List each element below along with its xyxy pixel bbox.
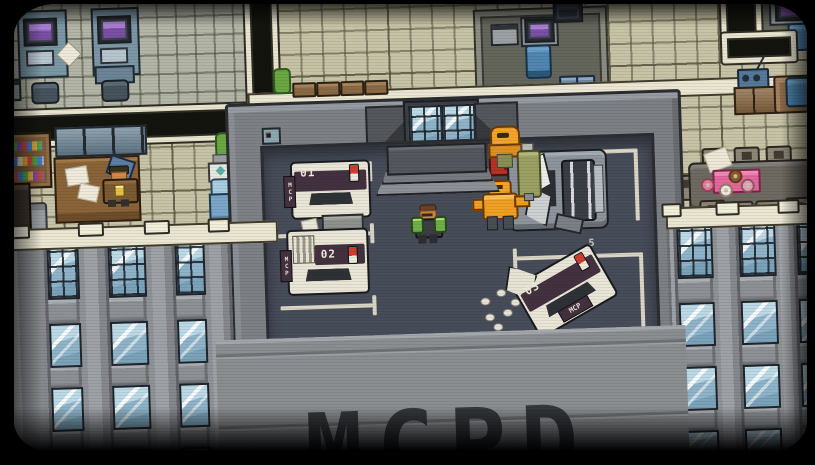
window	[110, 321, 149, 366]
window	[174, 239, 206, 296]
player-glove	[411, 217, 425, 234]
window	[741, 300, 779, 345]
window	[177, 319, 208, 364]
window	[51, 387, 84, 432]
roof-slats	[292, 235, 315, 264]
bot-chest	[497, 154, 513, 169]
police-car-02[interactable]: 02 MCP	[286, 227, 370, 296]
computer-monitor-off[interactable]	[552, 4, 583, 23]
car-roof-number: 02	[321, 247, 337, 260]
security-camera-icon[interactable]	[262, 127, 282, 145]
office-chair[interactable]	[101, 79, 130, 102]
game-world: 5 01 MCP	[14, 4, 807, 453]
player-visor	[422, 213, 433, 216]
book-row	[14, 141, 43, 152]
legs	[108, 200, 116, 207]
bot-leg	[487, 216, 498, 230]
wrench-tool	[524, 193, 534, 201]
window	[49, 323, 82, 368]
couch-bot-icon[interactable]	[785, 77, 807, 108]
debris-dot	[485, 313, 495, 321]
cabinet[interactable]	[733, 86, 778, 115]
window	[743, 364, 781, 409]
wall-seam	[216, 339, 686, 358]
parapet-cap	[14, 225, 30, 240]
window	[738, 220, 777, 277]
entrance-platform[interactable]	[386, 142, 487, 175]
car-side-label: MCP	[283, 176, 296, 208]
debris-dot	[503, 309, 513, 317]
debris-dot	[496, 289, 506, 297]
drink-item	[114, 184, 124, 196]
car-lightbar	[349, 164, 360, 182]
printer[interactable]	[490, 23, 519, 46]
window	[53, 451, 87, 453]
computer-monitor[interactable]	[774, 4, 807, 22]
car-rear	[593, 165, 605, 213]
office-chair[interactable]	[31, 82, 60, 105]
parking-line	[372, 295, 377, 315]
window	[181, 447, 213, 453]
debris-dot	[480, 297, 490, 305]
parapet-cap	[715, 201, 739, 216]
car-roof-number: 01	[300, 166, 316, 179]
speaker	[742, 75, 749, 82]
window	[114, 449, 154, 453]
bench[interactable]	[340, 80, 364, 96]
police-bot-icon[interactable]	[525, 44, 552, 79]
parking-line	[633, 148, 639, 220]
file-cabinet[interactable]	[54, 125, 147, 158]
parking-line	[370, 223, 375, 243]
bot-visor	[497, 133, 509, 138]
window	[801, 362, 807, 407]
parking-line	[281, 303, 373, 310]
building-sign: MCPD	[304, 392, 594, 453]
parapet-cap	[208, 218, 230, 233]
car-side-label: MCP	[280, 250, 293, 282]
bench[interactable]	[316, 81, 340, 97]
keyboard[interactable]	[100, 47, 129, 64]
camera-lens	[266, 133, 271, 138]
window	[799, 298, 807, 343]
car-cabin	[561, 159, 597, 222]
legs	[121, 199, 129, 206]
player-glove	[434, 216, 448, 233]
garage-front-wall: MCPD	[216, 325, 690, 453]
book-row	[14, 156, 44, 167]
diamond-mark	[216, 166, 226, 176]
player-leg	[429, 234, 437, 243]
parapet-cap	[777, 199, 799, 214]
window	[179, 383, 210, 428]
window	[107, 241, 147, 298]
parapet-cap	[661, 203, 681, 218]
parking-line	[513, 248, 518, 268]
bench[interactable]	[292, 82, 316, 98]
parapet-cap	[144, 220, 170, 235]
cactus-icon[interactable]	[273, 68, 292, 95]
copier-machine[interactable]	[14, 79, 22, 102]
parking-line	[639, 252, 646, 334]
computer-monitor[interactable]	[524, 18, 555, 43]
facade-left	[14, 238, 239, 453]
computer-monitor[interactable]	[23, 18, 58, 47]
player-character[interactable]	[412, 204, 441, 245]
parapet-cap	[78, 222, 104, 237]
car-lightbar	[348, 246, 359, 264]
window	[796, 218, 807, 275]
trenchcoat-npc[interactable]	[102, 165, 135, 208]
crt-screen: 5 01 MCP	[0, 0, 815, 465]
book-row	[14, 171, 44, 182]
player-leg	[418, 234, 426, 243]
window	[112, 385, 151, 430]
bot-leg	[503, 216, 514, 230]
crt-clip: 5 01 MCP	[14, 4, 807, 453]
window	[46, 243, 80, 300]
wall-corridor	[722, 31, 797, 63]
window	[745, 428, 783, 453]
speaker	[753, 74, 760, 81]
bookshelf[interactable]	[14, 132, 52, 190]
bench[interactable]	[364, 80, 388, 96]
window	[676, 222, 714, 279]
keyboard[interactable]	[26, 50, 55, 67]
police-car-01[interactable]: 01 MCP	[290, 159, 372, 220]
computer-monitor[interactable]	[97, 15, 132, 44]
